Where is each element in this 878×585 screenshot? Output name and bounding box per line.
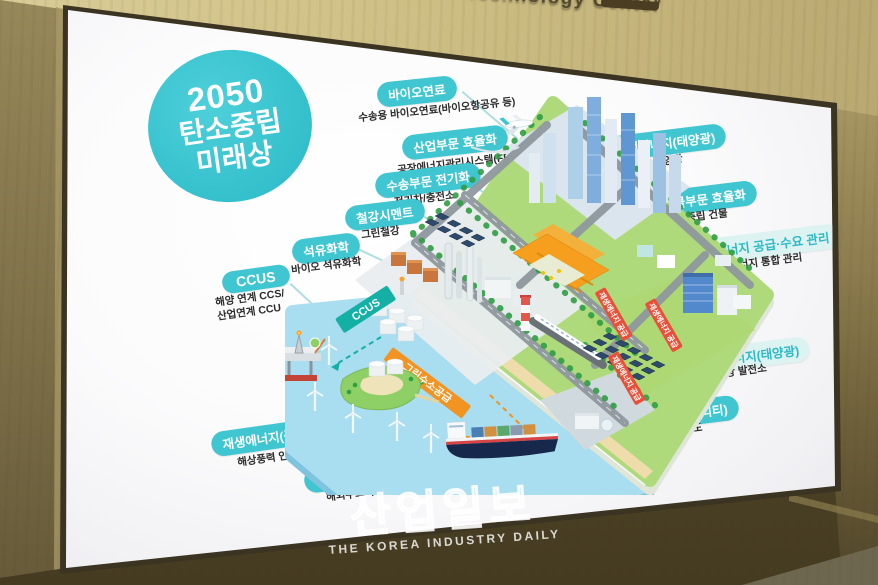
city-illustration: CCUS 그린수소공급 재생에너지 공급 재생에너지 공급 재생에너지 공급: [285, 95, 775, 495]
label-caption-ccus: 해양 연계 CCS/ 산업연계 CCU: [214, 286, 287, 324]
photo-of-carbon-neutral-poster: { "signage": { "building_sign": "Climate…: [0, 0, 878, 585]
